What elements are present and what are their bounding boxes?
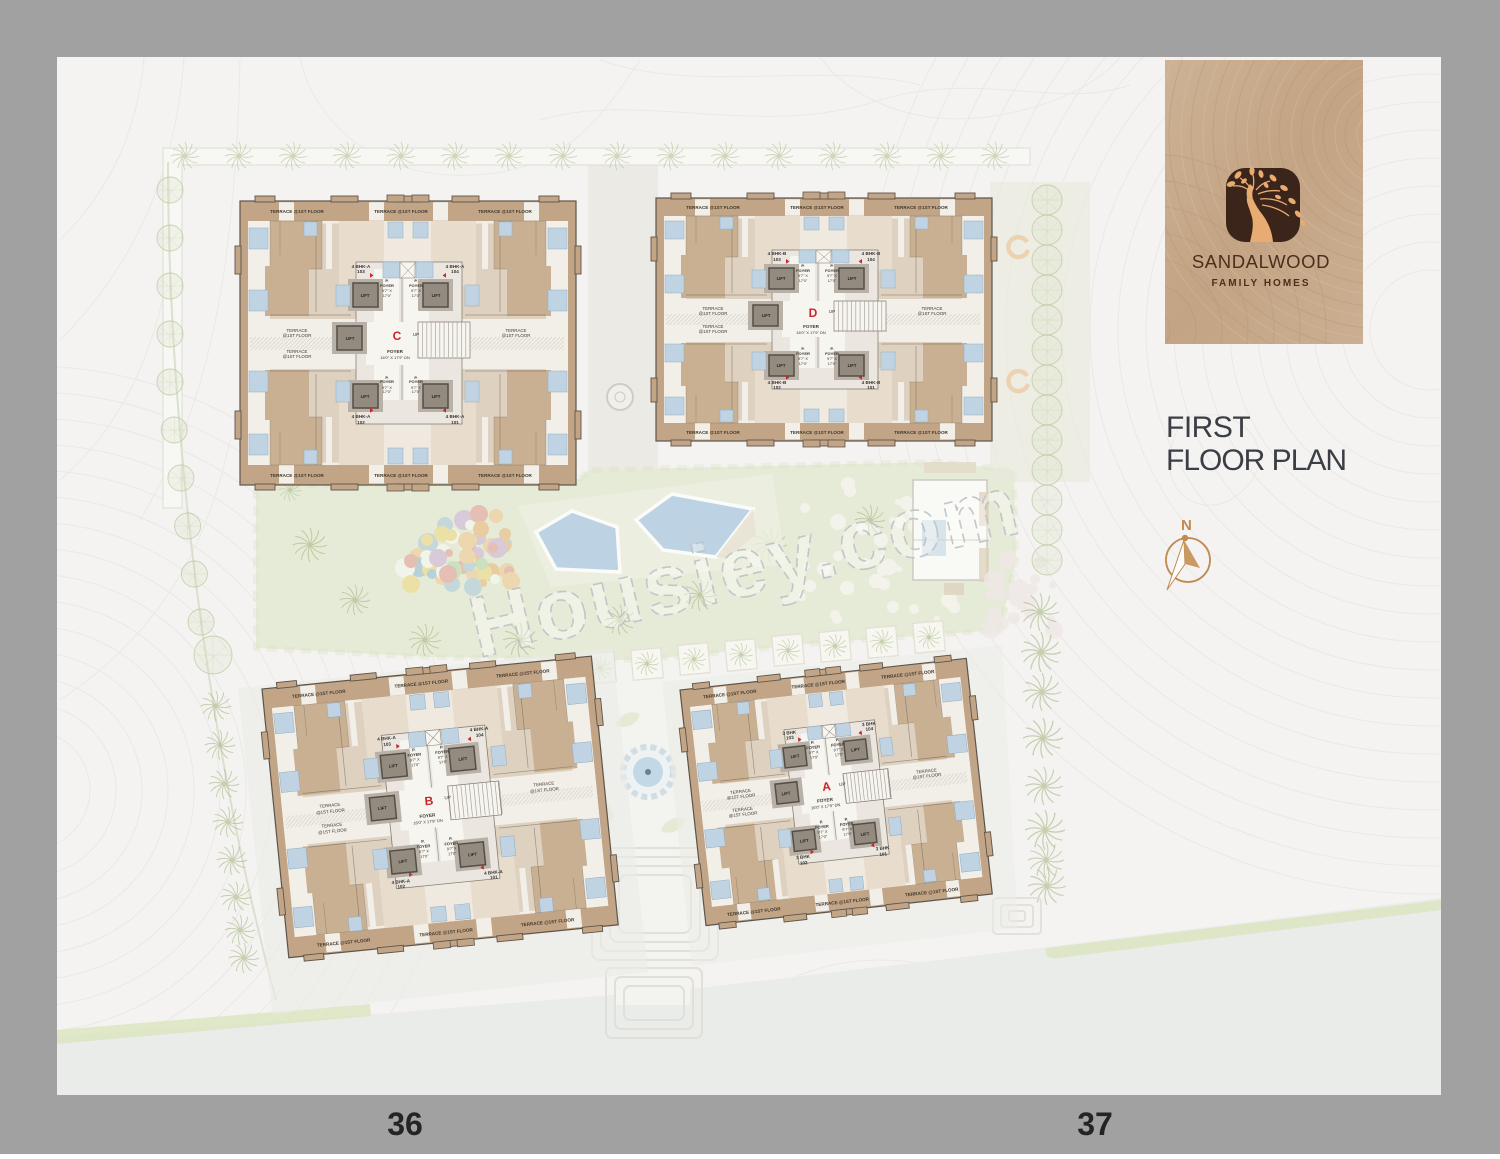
svg-text:101: 101	[879, 851, 888, 857]
svg-text:104: 104	[865, 726, 874, 732]
svg-text:37: 37	[1077, 1106, 1113, 1142]
svg-text:LIFT: LIFT	[432, 293, 441, 298]
svg-text:SANDALWOOD: SANDALWOOD	[1192, 251, 1330, 272]
svg-text:LIFT: LIFT	[860, 831, 870, 837]
svg-text:TERRACE @1ST FLOOR: TERRACE @1ST FLOOR	[790, 430, 844, 435]
svg-text:LIFT: LIFT	[361, 293, 370, 298]
svg-text:LIFT: LIFT	[762, 313, 771, 318]
svg-text:TERRACE @1ST FLOOR: TERRACE @1ST FLOOR	[790, 205, 844, 210]
svg-text:FOYER: FOYER	[796, 351, 810, 356]
svg-text:16'0" X 17'9" DN: 16'0" X 17'9" DN	[380, 355, 410, 360]
svg-text:LIFT: LIFT	[398, 858, 408, 864]
svg-text:102: 102	[800, 860, 809, 866]
svg-text:TERRACE @1ST FLOOR: TERRACE @1ST FLOOR	[686, 205, 740, 210]
svg-text:17'0": 17'0"	[412, 390, 421, 394]
svg-text:LIFT: LIFT	[468, 851, 478, 857]
svg-text:FOYER: FOYER	[387, 349, 404, 354]
svg-text:102: 102	[773, 385, 781, 390]
svg-text:TERRACE @1ST FLOOR: TERRACE @1ST FLOOR	[894, 430, 948, 435]
svg-text:17'0": 17'0"	[799, 362, 808, 366]
svg-text:17'0": 17'0"	[828, 362, 837, 366]
svg-text:LIFT: LIFT	[389, 763, 399, 769]
svg-text:LIFT: LIFT	[800, 838, 810, 844]
svg-text:N: N	[1181, 517, 1192, 534]
svg-text:4 BHK-B: 4 BHK-B	[862, 251, 881, 256]
svg-text:4 BHK-A: 4 BHK-A	[352, 414, 371, 419]
svg-text:LIFT: LIFT	[848, 363, 857, 368]
svg-text:LIFT: LIFT	[851, 747, 861, 753]
svg-text:103: 103	[357, 269, 365, 274]
svg-text:UP: UP	[829, 309, 835, 314]
svg-text:9'7" X: 9'7" X	[798, 357, 808, 361]
svg-text:FOYER: FOYER	[825, 351, 839, 356]
svg-text:17'0": 17'0"	[383, 294, 392, 298]
svg-text:UP: UP	[839, 781, 846, 787]
svg-text:TERRACE @1ST FLOOR: TERRACE @1ST FLOOR	[270, 473, 324, 478]
svg-text:B: B	[424, 794, 434, 809]
svg-text:104: 104	[451, 269, 459, 274]
svg-text:D: D	[809, 306, 818, 320]
svg-text:101: 101	[867, 385, 875, 390]
svg-text:LIFT: LIFT	[848, 276, 857, 281]
svg-text:@1ST FLOOR: @1ST FLOOR	[699, 329, 728, 334]
svg-text:102: 102	[357, 420, 365, 425]
svg-text:FLOOR PLAN: FLOOR PLAN	[1166, 444, 1346, 477]
svg-text:FOYER: FOYER	[409, 283, 423, 288]
svg-text:FOYER: FOYER	[796, 268, 810, 273]
svg-text:9'7" X: 9'7" X	[827, 274, 837, 278]
svg-text:103: 103	[773, 257, 781, 262]
svg-text:9'7" X: 9'7" X	[798, 274, 808, 278]
svg-text:FIRST: FIRST	[1166, 411, 1250, 444]
svg-text:FOYER: FOYER	[380, 379, 394, 384]
svg-text:C: C	[393, 329, 402, 343]
svg-text:LIFT: LIFT	[432, 394, 441, 399]
svg-text:104: 104	[476, 732, 485, 738]
svg-text:TERRACE @1ST FLOOR: TERRACE @1ST FLOOR	[478, 209, 532, 214]
svg-text:TERRACE @1ST FLOOR: TERRACE @1ST FLOOR	[270, 209, 324, 214]
svg-text:LIFT: LIFT	[781, 790, 791, 796]
svg-text:17'0": 17'0"	[799, 279, 808, 283]
svg-text:4 BHK-B: 4 BHK-B	[768, 251, 787, 256]
svg-text:101: 101	[451, 420, 459, 425]
svg-text:104: 104	[867, 257, 875, 262]
svg-text:4 BHK-A: 4 BHK-A	[446, 414, 465, 419]
svg-text:FOYER: FOYER	[803, 324, 820, 329]
svg-text:17'0": 17'0"	[383, 390, 392, 394]
svg-text:LIFT: LIFT	[458, 756, 468, 762]
svg-text:LIFT: LIFT	[378, 805, 388, 811]
svg-text:LIFT: LIFT	[790, 753, 800, 759]
svg-text:@1ST FLOOR: @1ST FLOOR	[699, 311, 728, 316]
svg-text:9'7" X: 9'7" X	[827, 357, 837, 361]
svg-text:UP: UP	[413, 332, 419, 337]
svg-text:@1ST FLOOR: @1ST FLOOR	[918, 311, 947, 316]
svg-text:9'7" X: 9'7" X	[382, 289, 392, 293]
svg-text:101: 101	[490, 874, 499, 880]
svg-text:9'7" X: 9'7" X	[411, 289, 421, 293]
svg-text:TERRACE @1ST FLOOR: TERRACE @1ST FLOOR	[374, 209, 428, 214]
svg-text:LIFT: LIFT	[777, 276, 786, 281]
svg-text:LIFT: LIFT	[777, 363, 786, 368]
svg-text:TERRACE @1ST FLOOR: TERRACE @1ST FLOOR	[894, 205, 948, 210]
svg-text:17'0": 17'0"	[828, 279, 837, 283]
svg-text:36: 36	[387, 1106, 423, 1142]
svg-text:@1ST FLOOR: @1ST FLOOR	[283, 354, 312, 359]
svg-text:UP: UP	[444, 795, 451, 801]
svg-text:FAMILY HOMES: FAMILY HOMES	[1211, 278, 1310, 289]
svg-text:FOYER: FOYER	[409, 379, 423, 384]
svg-text:17'0": 17'0"	[412, 294, 421, 298]
svg-text:16'0" X 17'9" DN: 16'0" X 17'9" DN	[796, 330, 826, 335]
svg-text:103: 103	[786, 735, 795, 741]
svg-text:@1ST FLOOR: @1ST FLOOR	[283, 333, 312, 338]
svg-text:TERRACE @1ST FLOOR: TERRACE @1ST FLOOR	[686, 430, 740, 435]
svg-text:@1ST FLOOR: @1ST FLOOR	[502, 333, 531, 338]
svg-text:LIFT: LIFT	[361, 394, 370, 399]
svg-text:LIFT: LIFT	[346, 336, 355, 341]
svg-text:FOYER: FOYER	[825, 268, 839, 273]
svg-text:TERRACE @1ST FLOOR: TERRACE @1ST FLOOR	[478, 473, 532, 478]
svg-text:FOYER: FOYER	[380, 283, 394, 288]
svg-text:TERRACE @1ST FLOOR: TERRACE @1ST FLOOR	[374, 473, 428, 478]
svg-text:103: 103	[383, 741, 392, 747]
svg-text:102: 102	[397, 884, 406, 890]
